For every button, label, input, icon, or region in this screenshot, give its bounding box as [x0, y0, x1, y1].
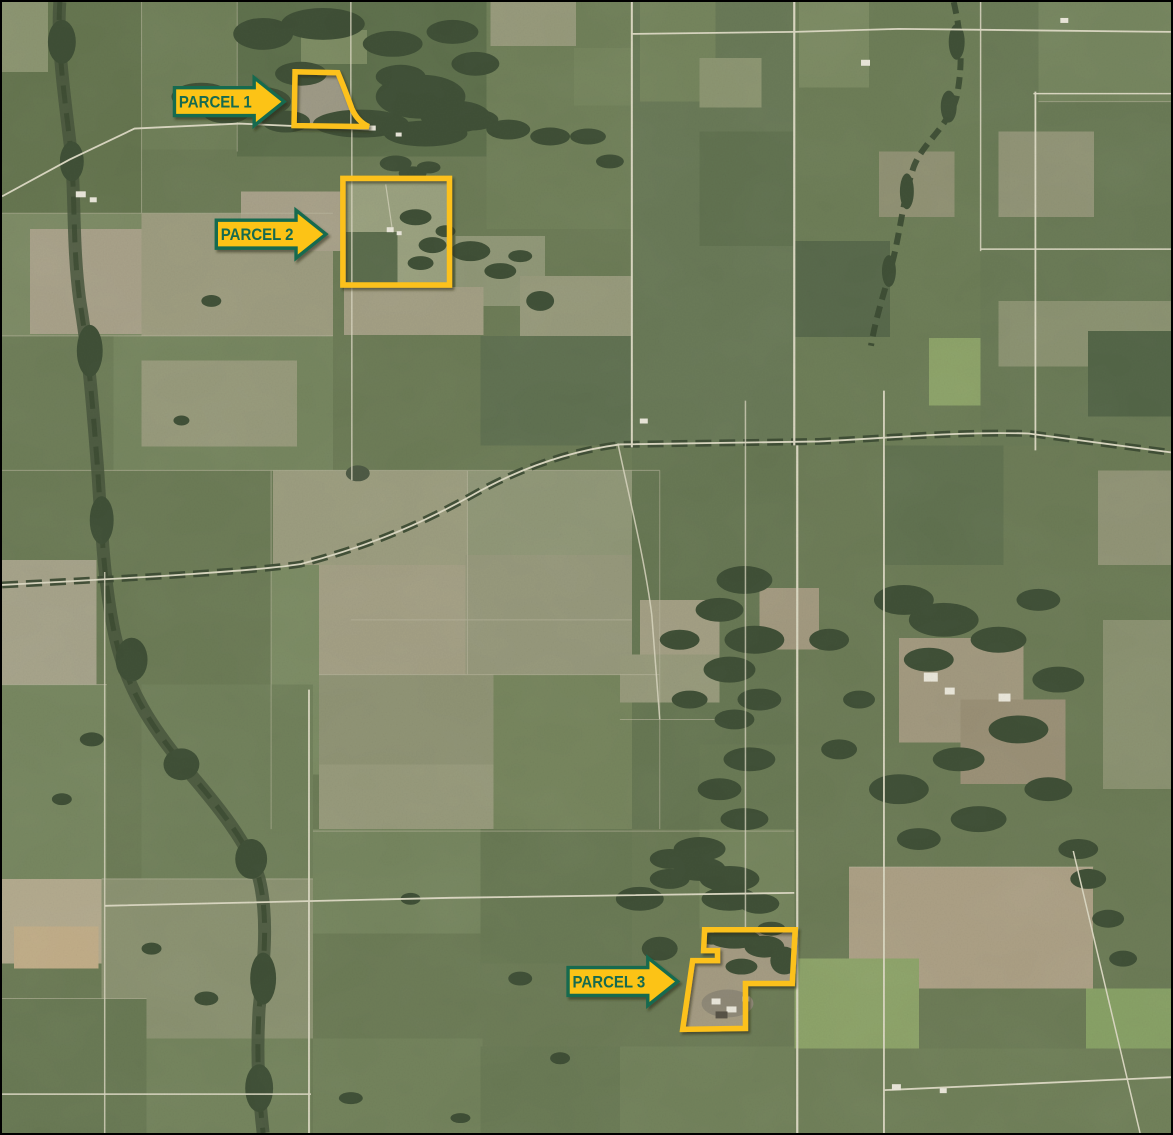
fields-layer	[2, 2, 1171, 1133]
parcel-1-label: PARCEL 1	[179, 94, 252, 112]
pond	[346, 465, 370, 481]
aerial-map-frame: PARCEL 1 PARCEL 2 PARCEL 3	[0, 0, 1173, 1135]
parcel-2-label: PARCEL 2	[221, 226, 294, 244]
aerial-map: PARCEL 1 PARCEL 2 PARCEL 3	[2, 2, 1171, 1133]
parcel-3-label: PARCEL 3	[573, 974, 646, 992]
